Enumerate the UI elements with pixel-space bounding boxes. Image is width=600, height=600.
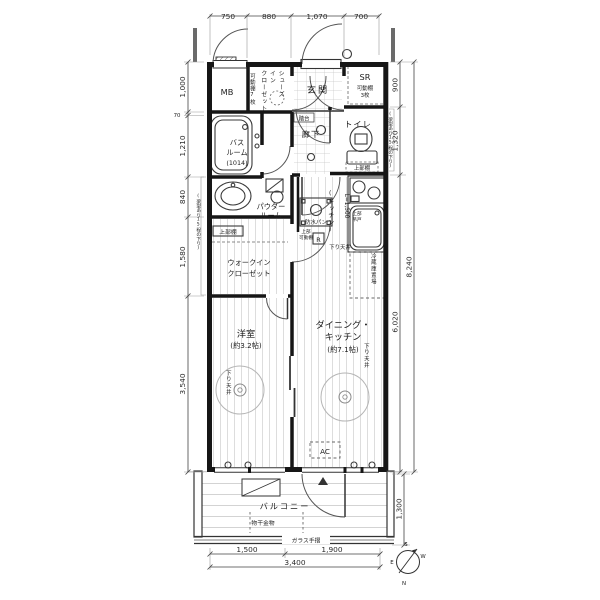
compass-e: E <box>390 560 394 566</box>
entrance-door-leaf <box>301 60 341 69</box>
entrance-door-swing <box>302 24 342 64</box>
label-powder-1: パウダー <box>257 202 286 211</box>
label-bedroom-size: (約3.2帖) <box>230 341 262 350</box>
vanity-basin <box>215 182 251 210</box>
floor-plan-sheet: { "plan": { "dims": { "top": ["750", "88… <box>0 0 600 600</box>
shower-icon <box>255 134 259 138</box>
label-mb: MB <box>221 87 234 97</box>
dim-top-700: 700 <box>354 12 368 21</box>
dim-right-900: 900 <box>391 78 400 92</box>
compass-circle <box>397 551 420 574</box>
dim-bottom-3400: 3,400 <box>284 558 305 567</box>
compass-s: S <box>404 542 408 548</box>
floor-plan-drawing: S W E N 750 880 1,070 700 1,000 70 1,210… <box>0 0 600 600</box>
dim-balcony-1300: 1,300 <box>395 498 404 519</box>
vanity-basin-inner <box>221 187 245 205</box>
label-r-box: R <box>316 236 321 244</box>
dim-left-1580: 1,580 <box>178 246 187 267</box>
label-sic-shelf-count: 可動棚7枚 <box>247 73 255 113</box>
window-mullion <box>248 467 251 473</box>
label-pan-shelf-2: 可動棚 <box>299 234 313 241</box>
window-mullion <box>361 467 364 473</box>
label-wic-1: ウォークイン <box>227 258 270 267</box>
compass-w: W <box>420 554 426 560</box>
mb-door-leaf <box>213 61 247 69</box>
powder-cabinet-diagonal <box>266 179 283 192</box>
label-beam-note-left: (梁型あり15程の下り) <box>194 194 201 260</box>
label-kitchen-length: L=1,500 <box>343 194 349 219</box>
toilet-bowl-inner <box>355 134 367 144</box>
label-down-ceiling-kitchen: 下り天井 <box>329 243 351 251</box>
label-sr-shelf: 可動棚 <box>357 84 373 92</box>
label-laundry-pan: 防水パン <box>305 218 327 226</box>
label-ac: AC <box>320 447 330 456</box>
toilet-bowl <box>350 127 372 152</box>
label-powder-2: ルーム <box>260 211 281 220</box>
label-down-ceiling-bedroom: 下り天井 <box>223 370 231 400</box>
label-genkan: 玄関 <box>307 84 329 96</box>
bath-control-icon <box>255 144 259 148</box>
label-cabinet-1: 上部 <box>352 210 362 217</box>
label-sr-shelf-count: 3枚 <box>361 91 370 99</box>
dim-right-6020: 6,020 <box>391 311 400 332</box>
label-beam-note-right: (梁型あり15程の下り) <box>386 112 393 178</box>
label-balcony: バルコニー <box>260 501 311 511</box>
label-glass-rail: ガラス手摺 <box>292 537 321 545</box>
dim-left-3540: 3,540 <box>178 373 187 394</box>
label-step-stool: 踏台 <box>299 115 310 123</box>
dim-left-840: 840 <box>178 190 187 204</box>
dim-top-880: 880 <box>262 12 276 21</box>
label-wic-2: クローゼット <box>227 269 270 278</box>
bath-faucet-icon <box>243 125 248 130</box>
window-mullion <box>344 467 347 473</box>
label-kitchen: (キッチン) <box>325 190 334 244</box>
label-sr: SR <box>360 72 371 82</box>
dim-top-1070: 1,070 <box>306 12 327 21</box>
label-hallway: 廊下 <box>302 129 320 139</box>
label-cabinet-2: 吊戸 <box>352 217 362 223</box>
dim-left-70: 70 <box>174 113 181 119</box>
dim-right-8240: 8,240 <box>405 256 414 277</box>
label-dk-size: (約7.1帖) <box>327 345 359 354</box>
label-toilet: トイレ <box>344 119 372 129</box>
label-down-ceiling-dk: 下り天井 <box>361 343 369 373</box>
compass-arrowhead <box>412 549 417 554</box>
dim-left-1210: 1,210 <box>178 135 187 156</box>
dim-top-750: 750 <box>221 12 235 21</box>
dim-left-1000: 1,000 <box>178 76 187 97</box>
label-shoes-in-closet: シューズ イン クローゼット <box>258 70 284 116</box>
label-toilet-shelf: 上部棚 <box>354 164 370 172</box>
balcony-side-wall-left <box>194 471 202 537</box>
dim-bottom-1900: 1,900 <box>321 545 342 554</box>
vanity-faucet-icon <box>231 183 235 187</box>
label-pan-shelf-1: 上部 <box>301 228 311 235</box>
balcony-side-wall-right <box>387 471 394 537</box>
compass-n: N <box>402 581 406 587</box>
dim-bottom-1500: 1,500 <box>236 545 257 554</box>
label-fridge-space: 冷蔵庫置場 <box>368 253 376 297</box>
label-wic-shelf: 上部棚 <box>219 228 237 236</box>
label-dk-1: ダイニング・ <box>315 319 370 331</box>
compass: S W E N <box>390 542 426 587</box>
corridor-wall-stub-left <box>193 28 197 62</box>
bedroom-wood-floor <box>209 298 290 467</box>
label-bath-2: ルーム <box>226 148 247 157</box>
floor-finishes <box>202 66 387 535</box>
corridor-wall-stub-right <box>391 28 395 62</box>
label-bath-size: (1014) <box>226 159 247 167</box>
label-dk-2: キッチン <box>325 332 362 343</box>
label-bath-1: バス <box>230 138 244 147</box>
dk-window <box>302 468 379 472</box>
label-bedroom: 洋室 <box>237 328 255 340</box>
label-laundry-hook: 物干金物 <box>251 519 274 527</box>
bath-door-swing <box>262 146 290 174</box>
